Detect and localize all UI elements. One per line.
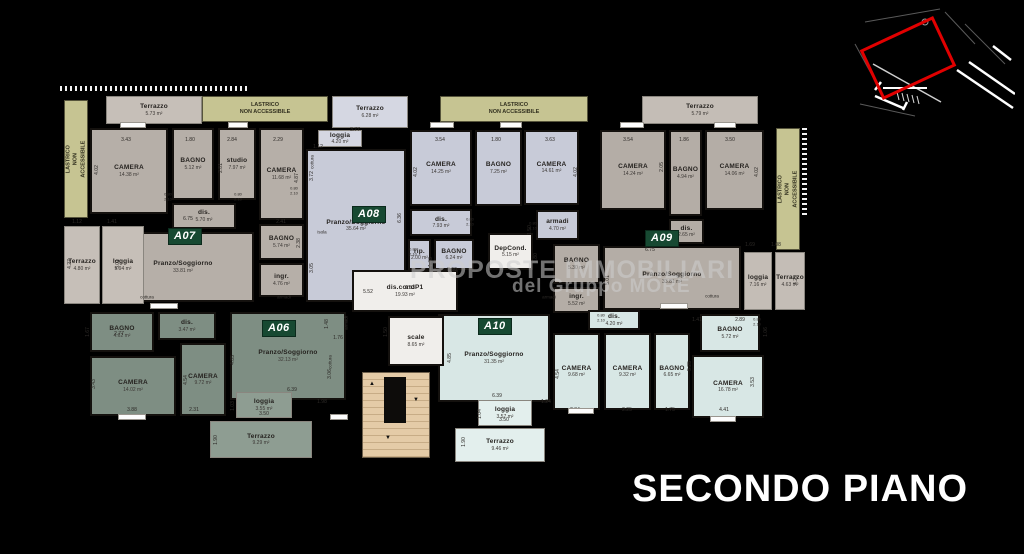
dimension-label: 1.90 xyxy=(461,437,467,447)
dimension-label: 2.89 xyxy=(735,317,745,323)
fixture-label-armadi: armadi xyxy=(277,295,291,300)
dimension-label: 3.88 xyxy=(127,407,137,413)
a10-room-terrazzo: Terrazzo9.46 m² xyxy=(455,428,545,462)
a08-room-armadi: armadi4.70 m² xyxy=(536,210,579,240)
stairwell-core xyxy=(384,377,406,423)
dimension-label: 4.02 xyxy=(94,165,100,175)
room-label: CAMERA xyxy=(118,379,148,387)
room-area: 6.28 m² xyxy=(362,113,379,119)
room-label: BAGNO xyxy=(180,157,205,165)
a07-room-ingr-: ingr.4.76 m² xyxy=(259,263,304,297)
a10-room-bagno: BAGNO5.72 m² xyxy=(700,314,760,352)
dimension-label: 1.24 xyxy=(541,399,551,405)
dimension-label: 1.04 xyxy=(477,409,483,419)
door-size-tag: 0.802.10 xyxy=(234,192,242,201)
room-label: BAGNO xyxy=(673,166,698,174)
window xyxy=(430,122,454,128)
dimension-label: 3.53 xyxy=(750,377,756,387)
dimension-label: 5.52 xyxy=(363,289,373,295)
dimension-label: 2.05 xyxy=(659,162,665,172)
room-area: 7.93 m² xyxy=(433,223,450,229)
room-label: CAMERA xyxy=(562,365,592,373)
room-label: Terrazzo xyxy=(356,105,384,113)
dimension-label: 2.81 xyxy=(218,163,224,173)
dimension-label: 3.43 xyxy=(121,137,131,143)
lastrico-label: LASTRICO NON ACCESSIBILE xyxy=(240,102,291,117)
fixture-label-cottura: cottura xyxy=(140,295,154,300)
room-area: 5.12 m² xyxy=(185,165,202,171)
dimension-label: 3.50 xyxy=(259,411,269,417)
dimension-label: 4.41 xyxy=(719,407,729,413)
dimension-label: 4.27 xyxy=(67,259,73,269)
room-label: loggia xyxy=(254,398,274,406)
lastrico-label: LASTRICO NON ACCESSIBILE xyxy=(489,102,540,117)
dimension-label: 3.54 xyxy=(623,137,633,143)
lastrico-strip: LASTRICO NON ACCESSIBILE xyxy=(440,96,588,122)
room-area: 14.24 m² xyxy=(623,171,643,177)
a08-room-dis-: dis.7.93 m² xyxy=(410,209,472,236)
room-label: loggia xyxy=(495,406,515,414)
dimension-label: 1.48 xyxy=(324,319,330,329)
room-area: 8.65 m² xyxy=(408,342,425,348)
site-minimap xyxy=(845,4,1015,119)
room-area: 4.94 m² xyxy=(677,174,694,180)
window xyxy=(150,303,178,309)
stairs-up-arrow: ▲ xyxy=(369,381,375,387)
room-area: 4.20 m² xyxy=(606,321,623,327)
dimension-label: 3.05 xyxy=(309,263,315,273)
dimension-label: 2.84 xyxy=(227,137,237,143)
lastrico-label: LASTRICO NON ACCESSIBILE xyxy=(777,171,799,208)
room-label: Terrazzo xyxy=(486,438,514,446)
room-area: 7.16 m² xyxy=(750,282,767,288)
room-area: 3.47 m² xyxy=(179,327,196,333)
a09-room-terrazzo: Terrazzo5.79 m² xyxy=(642,96,758,124)
room-area: 5.70 m² xyxy=(196,217,213,223)
room-area: 5.52 m² xyxy=(568,301,585,307)
door-size-value: 2.10 xyxy=(529,226,537,231)
dimension-label: 2.38 xyxy=(296,238,302,248)
room-area: 5.72 m² xyxy=(722,334,739,340)
room-label: Pranzo/Soggiorno xyxy=(153,260,212,268)
a10-room-dis-: dis.4.20 m² xyxy=(588,310,640,330)
room-area: 9.72 m² xyxy=(195,380,212,386)
door-size-tag: 0.802.10 xyxy=(290,186,298,195)
room-area: 32.13 m² xyxy=(278,357,298,363)
window xyxy=(660,303,688,309)
common-room-scale: scale8.65 m² xyxy=(388,316,444,366)
dimension-label: 3.50 xyxy=(499,417,509,423)
dimension-label: 1.75 xyxy=(665,407,675,413)
dimension-label: 1.50 xyxy=(383,327,389,337)
room-label: DepCond. xyxy=(494,245,526,253)
room-area: 5.73 m² xyxy=(146,111,163,117)
window xyxy=(120,122,146,128)
a10-room-bagno: BAGNO6.65 m² xyxy=(654,333,690,410)
dimension-label: 1.76 xyxy=(333,335,343,341)
door-size-tag: 0.802.10 xyxy=(466,217,474,226)
dimension-label: 6.75 xyxy=(183,216,193,222)
room-label: armadi xyxy=(546,218,569,226)
room-area: 14.61 m² xyxy=(542,168,562,174)
dimension-label: 1.80 xyxy=(185,137,195,143)
stairs-down-arrow: ▼ xyxy=(385,435,391,441)
dimension-label: 6.39 xyxy=(492,393,502,399)
a07-room-loggia: loggia5.94 m² xyxy=(102,226,144,304)
room-area: 6.65 m² xyxy=(664,372,681,378)
watermark-line2: del Gruppo MORE xyxy=(512,276,691,298)
room-area: 19.93 m² xyxy=(395,292,415,298)
door-size-value: 2.10 xyxy=(597,318,605,323)
hatch-strip xyxy=(60,86,250,91)
dimension-label: 2.31 xyxy=(189,407,199,413)
door-size-value: 2.10 xyxy=(164,197,172,202)
room-label: Pranzo/Soggiorno xyxy=(464,351,523,359)
dimension-label: 1.98 xyxy=(317,399,327,405)
room-label: BAGNO xyxy=(269,235,294,243)
room-area: 11.68 m² xyxy=(272,175,291,181)
dimension-label: 4.85 xyxy=(447,353,453,363)
room-label: Terrazzo xyxy=(686,103,714,111)
room-area: 7.97 m² xyxy=(229,165,246,171)
apartment-badge-a10: A10 xyxy=(478,318,512,335)
dimension-label: 1.12 xyxy=(72,219,82,225)
lastrico-strip: LASTRICO NON ACCESSIBILE xyxy=(202,96,328,122)
room-label: CAMERA xyxy=(188,373,218,381)
room-label: dis. xyxy=(198,209,210,217)
fixture-label-cottura: cottura xyxy=(310,155,315,169)
dimension-label: 4.02 xyxy=(573,167,579,177)
room-label: CAMERA xyxy=(720,163,750,171)
door-size-tag: 0.802.10 xyxy=(597,313,605,322)
dimension-label: 6.39 xyxy=(287,387,297,393)
dimension-label: 4.54 xyxy=(555,369,561,379)
room-label: Pranzo/Soggiorno xyxy=(258,349,317,357)
dimension-label: 1.08 xyxy=(771,242,781,248)
dimension-label: 6.36 xyxy=(397,213,403,223)
fixture-label-isola: isola xyxy=(317,230,326,235)
room-area: 4.76 m² xyxy=(273,281,290,287)
room-area: 14.25 m² xyxy=(431,169,451,175)
room-label: Terrazzo xyxy=(776,274,804,282)
dimension-label: 5.25 xyxy=(687,361,693,371)
room-label: studio xyxy=(227,157,248,165)
dimension-label: 2.25 xyxy=(622,407,632,413)
door-size-tag: 0.802.10 xyxy=(164,192,172,201)
room-label: dis. xyxy=(608,313,620,321)
room-label: CAMERA xyxy=(426,161,456,169)
fixture-label-cottura: cottura xyxy=(328,355,333,369)
dimension-label: 3.63 xyxy=(545,137,555,143)
apartment-badge-a06: A06 xyxy=(262,320,296,337)
room-label: BAGNO xyxy=(441,248,466,256)
apartment-badge-a08: A08 xyxy=(352,206,386,223)
window xyxy=(118,414,146,420)
room-area: 9.32 m² xyxy=(619,372,636,378)
room-label: loggia xyxy=(748,274,768,282)
room-label: loggia xyxy=(330,132,350,140)
window xyxy=(330,414,348,420)
room-label: Terrazzo xyxy=(247,433,275,441)
door-size-tag: 0.802.10 xyxy=(753,317,761,326)
room-area: 7.25 m² xyxy=(490,169,507,175)
dimension-label: 3.50 xyxy=(725,137,735,143)
room-area: 31.35 m² xyxy=(484,359,504,365)
window xyxy=(500,122,522,128)
room-area: 4.70 m² xyxy=(549,226,566,232)
apartment-badge-a07: A07 xyxy=(168,228,202,245)
door-size-value: 2.10 xyxy=(290,191,298,196)
a06-room-dis-: dis.3.47 m² xyxy=(158,312,216,340)
stairs-down-arrow: ▼ xyxy=(413,397,419,403)
dimension-label: 4.85 xyxy=(230,355,236,365)
dimension-label: 4.02 xyxy=(413,167,419,177)
room-area: 33.81 m² xyxy=(173,268,193,274)
room-area: 16.78 m² xyxy=(718,387,738,393)
window xyxy=(568,408,594,414)
dimension-label: 4.54 xyxy=(183,375,189,385)
stairs: ▲ ▼ ▼ xyxy=(362,372,430,458)
room-label: CAMERA xyxy=(114,164,144,172)
dimension-label: 4.87 xyxy=(294,173,300,183)
dimension-label: 2.41 xyxy=(276,219,286,225)
door-size-value: 2.10 xyxy=(466,222,474,227)
dimension-label: 2.29 xyxy=(273,137,283,143)
room-label: CAMERA xyxy=(613,365,643,373)
room-label: scale xyxy=(407,334,424,342)
fixture-label-armadi: armadi xyxy=(344,316,349,330)
dimension-label: 3.54 xyxy=(435,137,445,143)
a10-room-camera: CAMERA9.32 m² xyxy=(604,333,651,410)
dimension-label: 2.77 xyxy=(114,331,124,337)
dimension-label: 1.90 xyxy=(213,435,219,445)
room-area: 9.68 m² xyxy=(568,372,585,378)
room-label: CAMERA xyxy=(713,380,743,388)
window xyxy=(228,122,248,128)
a09-room-loggia: loggia7.16 m² xyxy=(744,252,772,310)
dimension-label: 1.41 xyxy=(692,317,702,323)
room-label: BAGNO xyxy=(486,161,511,169)
dimension-label: 1.67 xyxy=(85,327,91,337)
room-label: BAGNO xyxy=(659,365,684,373)
dimension-label: 1.69 xyxy=(745,242,755,248)
dimension-label: 6.75 xyxy=(645,247,655,253)
hatch-strip xyxy=(802,128,807,218)
room-area: 9.46 m² xyxy=(492,446,509,452)
dimension-label: 1.80 xyxy=(491,137,501,143)
room-area: 14.02 m² xyxy=(123,387,143,393)
floor-plan-canvas: Terrazzo5.73 m²CAMERA14.38 m²BAGNO5.12 m… xyxy=(0,0,1024,554)
lastrico-strip: LASTRICO NON ACCESSIBILE xyxy=(776,128,800,250)
dimension-label: 4.02 xyxy=(754,167,760,177)
dimension-label: 1.53 xyxy=(405,285,415,291)
room-area: 14.38 m² xyxy=(119,172,139,178)
dimension-label: 1.86 xyxy=(679,137,689,143)
room-label: CAMERA xyxy=(267,167,297,175)
dimension-label: 4.29 xyxy=(793,275,799,285)
fixture-label-cottura: cottura xyxy=(705,294,719,299)
page-title: SECONDO PIANO xyxy=(632,468,968,511)
dimension-label: 3.72 xyxy=(309,171,315,181)
room-label: dis. xyxy=(181,319,193,327)
dimension-label: 1.12 xyxy=(313,144,323,150)
room-label: dis. xyxy=(681,225,693,233)
room-label: dis. xyxy=(435,216,447,224)
window xyxy=(710,416,736,422)
window xyxy=(714,122,736,128)
door-size-value: 2.10 xyxy=(234,197,242,202)
window xyxy=(620,122,644,128)
apartment-badge-a09: A09 xyxy=(645,230,679,247)
room-area: 14.06 m² xyxy=(725,171,745,177)
lastrico-label: LASTRICO NON ACCESSIBILE xyxy=(65,141,87,178)
room-label: Terrazzo xyxy=(140,103,168,111)
a07-room-terrazzo: Terrazzo5.73 m² xyxy=(106,96,202,124)
room-label: CAMERA xyxy=(618,163,648,171)
dimension-label: 1.03 xyxy=(230,401,236,411)
door-size-value: 2.10 xyxy=(753,322,761,327)
room-area: 9.29 m² xyxy=(253,440,270,446)
dimension-label: 3.43 xyxy=(91,379,97,389)
room-label: ingr. xyxy=(274,273,289,281)
door-size-tag: 0.802.10 xyxy=(529,221,537,230)
room-area: 5.74 m² xyxy=(273,243,290,249)
a06-room-terrazzo: Terrazzo9.29 m² xyxy=(210,421,312,458)
a07-room-dis-: dis.5.70 m² xyxy=(172,203,236,229)
room-label: BAGNO xyxy=(717,326,742,334)
room-area: 4.80 m² xyxy=(74,266,91,272)
room-label: CAMERA xyxy=(537,161,567,169)
room-area: 4.20 m² xyxy=(332,139,349,145)
room-area: 2.65 m² xyxy=(678,232,695,238)
dimension-label: 5.01 xyxy=(115,259,121,269)
dimension-label: 3.77 xyxy=(350,127,360,133)
dimension-label: 1.41 xyxy=(107,219,117,225)
a09-room-terrazzo: Terrazzo4.63 m² xyxy=(775,252,805,310)
dimension-label: 1.06 xyxy=(763,327,769,337)
room-area: 5.79 m² xyxy=(692,111,709,117)
dimension-label: 3.06 xyxy=(327,369,333,379)
lastrico-strip: LASTRICO NON ACCESSIBILE xyxy=(64,100,88,218)
a08-room-terrazzo: Terrazzo6.28 m² xyxy=(332,96,408,128)
room-area: 35.64 m² xyxy=(346,226,366,232)
